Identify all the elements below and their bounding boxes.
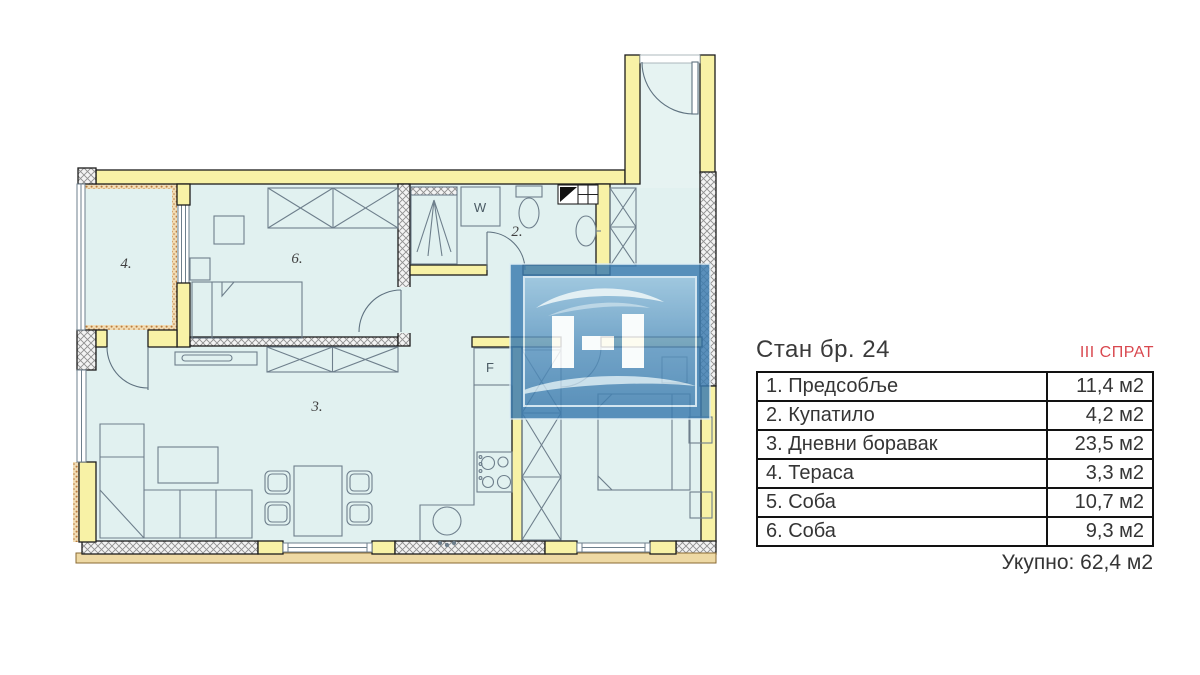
table-row: 1. Предсобље 11,4 м2 [757, 372, 1153, 401]
room-name-cell: 6. Соба [757, 517, 1047, 546]
table-row: 3. Дневни боравак 23,5 м2 [757, 430, 1153, 459]
bedroom6-label: 6. [291, 251, 302, 267]
room-name-cell: 2. Купатило [757, 401, 1047, 430]
watermark-logo [510, 264, 710, 419]
room-area-cell: 23,5 м2 [1047, 430, 1153, 459]
bathroom-label: 2. [511, 224, 522, 240]
room-areas-table: 1. Предсобље 11,4 м2 2. Купатило 4,2 м2 … [756, 371, 1154, 547]
room-name-cell: 5. Соба [757, 488, 1047, 517]
table-row: 5. Соба 10,7 м2 [757, 488, 1153, 517]
table-row: 2. Купатило 4,2 м2 [757, 401, 1153, 430]
room-area-cell: 4,2 м2 [1047, 401, 1153, 430]
washer-label: W [474, 200, 487, 215]
floor-label: III СПРАТ [1080, 344, 1154, 362]
terrace-label: 4. [120, 256, 131, 272]
room-name-cell: 1. Предсобље [757, 372, 1047, 401]
room-area-cell: 11,4 м2 [1047, 372, 1153, 401]
room-area-cell: 9,3 м2 [1047, 517, 1153, 546]
room-area-cell: 3,3 м2 [1047, 459, 1153, 488]
fridge-label: F [486, 360, 494, 375]
living-room-label: 3. [310, 399, 322, 415]
room-name-cell: 3. Дневни боравак [757, 430, 1047, 459]
apartment-info-panel: Стан бр. 24 III СПРАТ 1. Предсобље 11,4 … [756, 336, 1154, 575]
total-area: Укупно: 62,4 м2 [756, 551, 1154, 575]
apartment-title: Стан бр. 24 [756, 336, 890, 364]
table-row: 6. Соба 9,3 м2 [757, 517, 1153, 546]
floor-plan-page: 4. 6. 2. 3. W F Стан бр. 24 III СПРАТ 1.… [0, 0, 1200, 675]
info-header: Стан бр. 24 III СПРАТ [756, 336, 1154, 364]
room-name-cell: 4. Тераса [757, 459, 1047, 488]
ventilation-shaft [558, 185, 598, 204]
room-area-cell: 10,7 м2 [1047, 488, 1153, 517]
table-row: 4. Тераса 3,3 м2 [757, 459, 1153, 488]
